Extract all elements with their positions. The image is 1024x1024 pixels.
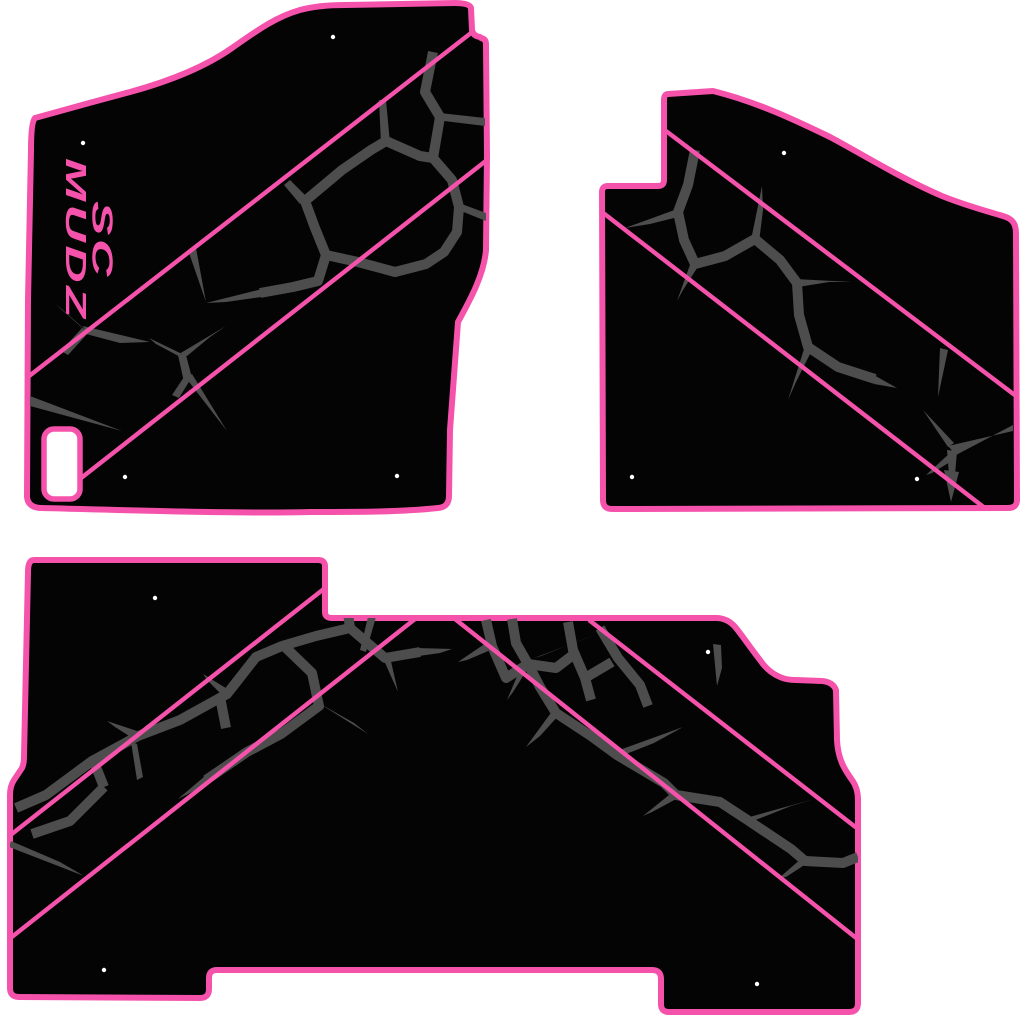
svg-text:SC: SC xyxy=(86,201,119,280)
